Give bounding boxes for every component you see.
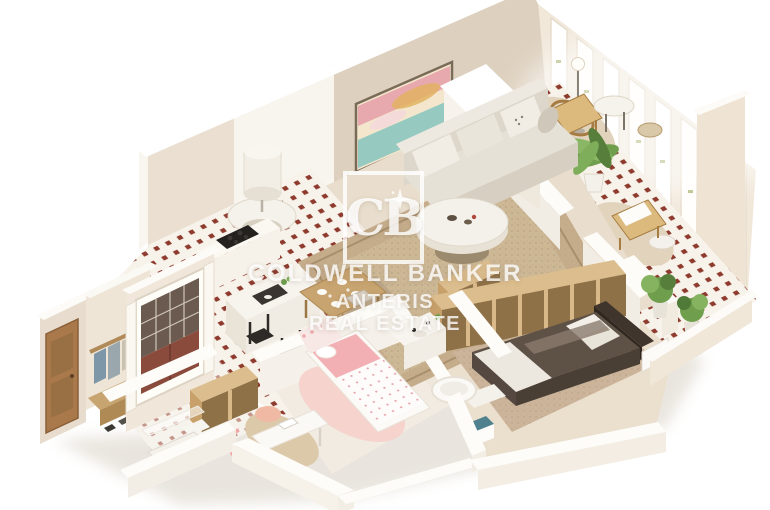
- pouf: [255, 406, 281, 422]
- apartment-3d-scene: [0, 0, 770, 510]
- floor-plan-render: CB COLDWELL BANKER ANTERIS REAL ESTATE: [0, 0, 770, 510]
- entrance-door: [46, 319, 78, 433]
